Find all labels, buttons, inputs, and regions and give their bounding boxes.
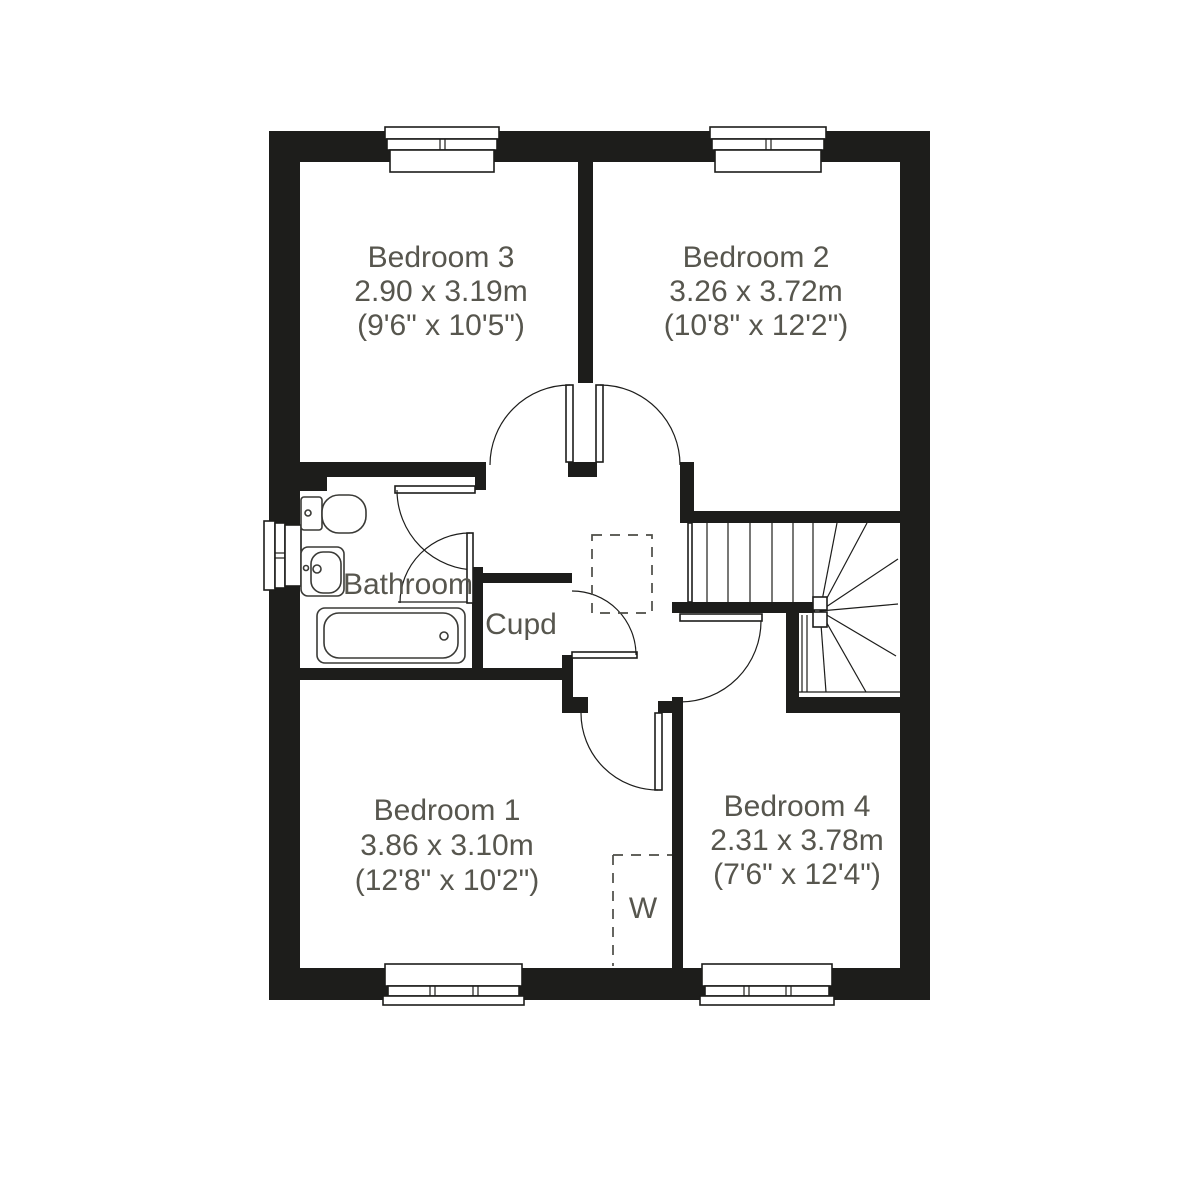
bath-inner [324, 613, 458, 658]
door-leaf [655, 713, 662, 790]
door-swing-arc [397, 490, 477, 570]
bedroom2-name: Bedroom 2 [683, 241, 830, 274]
bedroom4-name: Bedroom 4 [724, 790, 871, 823]
door-swing-arc [600, 385, 680, 465]
wall-stairs-north [680, 511, 900, 523]
cupboard-name: Cupd [485, 608, 557, 641]
wall-stairs-half [672, 602, 815, 613]
toilet [301, 495, 366, 533]
window-sill [383, 996, 524, 1005]
loft-hatch-dashed [592, 535, 652, 613]
window-recess [715, 150, 821, 172]
wall-divider-foot [568, 462, 597, 477]
window-sill [385, 127, 499, 139]
wall-bed1-door-west [562, 697, 588, 713]
bedroom3-name: Bedroom 3 [368, 241, 515, 274]
stair-winder-line [820, 604, 898, 611]
bathroom-name: Bathroom [343, 568, 473, 601]
wall-cupboard-north [483, 573, 572, 583]
window-recess [385, 964, 522, 986]
stair-newel-post [813, 597, 827, 610]
wall-bathroom-north [300, 462, 475, 477]
bedroom4-metric: 2.31 x 3.78m [710, 824, 883, 857]
wall-bed1-north [295, 668, 573, 680]
window-recess [702, 964, 832, 986]
wall-bed4-west [672, 697, 683, 968]
door-cupboard [572, 591, 637, 658]
window-bedroom2 [710, 127, 826, 172]
basin-tap [304, 566, 309, 571]
wall-stairs-south [786, 697, 903, 713]
door-leaf [680, 614, 762, 621]
door-bedroom2 [596, 385, 680, 465]
wall-stairs-southwest [786, 613, 799, 697]
stair-winder-line [820, 559, 898, 611]
door-leaf [395, 486, 475, 493]
door-swing-arc [490, 385, 570, 465]
toilet-bowl [322, 495, 366, 533]
door-leaf [596, 385, 603, 462]
window-sill [710, 127, 826, 139]
door-bedroom1 [581, 713, 662, 790]
window-glazing [712, 139, 824, 150]
basin [301, 547, 344, 596]
stair-newel-post [813, 612, 827, 627]
window-glazing [388, 986, 519, 996]
bathtub [317, 608, 465, 663]
door-swing-arc [680, 621, 761, 702]
room-labels: Bedroom 3 2.90 x 3.19m (9'6" x 10'5") Be… [343, 241, 884, 925]
door-bedroom4 [680, 614, 762, 702]
window-bathroom [264, 521, 301, 590]
door-leaf [572, 652, 637, 658]
window-glazing [275, 523, 285, 588]
bedroom1-imperial: (12'8" x 10'2") [355, 864, 540, 897]
door-leaf [566, 385, 573, 462]
floorplan-page: Bedroom 3 2.90 x 3.19m (9'6" x 10'5") Be… [0, 0, 1200, 1200]
window-bedroom3 [385, 127, 499, 172]
wall-bathroom-door-jamb [475, 462, 486, 490]
basin-tap [313, 565, 321, 573]
bedroom1-name: Bedroom 1 [374, 794, 521, 827]
wall-right [900, 131, 930, 1000]
window-recess [285, 525, 301, 586]
window-glazing [705, 986, 829, 996]
window-sill [700, 996, 834, 1005]
floorplan-drawing: Bedroom 3 2.90 x 3.19m (9'6" x 10'5") Be… [0, 0, 1200, 1200]
wall-top [269, 131, 930, 162]
window-glazing [387, 139, 497, 150]
door-swing-arc [581, 713, 658, 790]
wall-bed3-bed2-divider [578, 162, 593, 383]
window-sill [264, 521, 275, 590]
window-bedroom1 [383, 964, 524, 1005]
bedroom1-metric: 3.86 x 3.10m [360, 829, 533, 862]
stair-edge-line [688, 523, 692, 602]
bedroom3-metric: 2.90 x 3.19m [354, 275, 527, 308]
bedroom2-imperial: (10'8" x 12'2") [664, 309, 849, 342]
window-bedroom4 [700, 964, 834, 1005]
bath-drain [440, 632, 448, 640]
wall-cistern-boxing [300, 477, 327, 491]
toilet-flush-button [305, 510, 311, 516]
door-swing-arc [572, 591, 636, 655]
bedroom3-imperial: (9'6" x 10'5") [357, 309, 525, 342]
wardrobe-name: W [629, 892, 658, 925]
door-bedroom3 [490, 385, 573, 465]
bedroom2-metric: 3.26 x 3.72m [669, 275, 842, 308]
bedroom4-imperial: (7'6" x 12'4") [713, 858, 881, 891]
window-recess [390, 150, 494, 172]
stair-winder-line [820, 611, 896, 656]
